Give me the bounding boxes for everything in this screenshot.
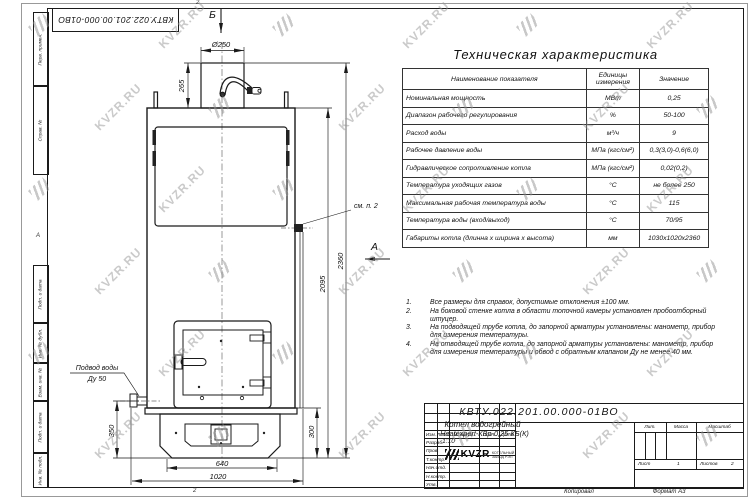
table-cell: Габариты котла (длинна х ширина х высота… [403,230,587,248]
base-bolt [263,432,265,434]
table-cell: Рабочее давление воды [403,142,587,160]
table-cell: Диапазон рабочего регулирования [403,107,587,125]
table-cell: м³/ч [586,125,640,143]
note-number: 4. [403,341,430,357]
tech-col-units: Единицы измерения [586,69,640,90]
door-bolt-hole [200,396,203,399]
door-bolt-hole [240,396,243,399]
tech-table-body: Номинальная мощностьМВт0,25Диапазон рабо… [403,90,709,248]
drawer-bolt [220,442,222,444]
col-list: Лист [437,432,449,439]
row-prov: Пров. [426,448,439,455]
tech-col-name: Наименование показателя [403,69,587,90]
water-inlet-label-line2: Ду 50 [87,376,106,383]
see-note-leader [303,210,351,224]
col-dokum: № докум. [449,432,479,439]
note-number: 3. [403,324,430,340]
lifting-lug-left [154,92,158,108]
dim-1020: 1020 [210,472,228,481]
table-cell: % [586,107,640,125]
title-block-doc-number: КВТУ.022.201.00.000-01ВО [425,404,653,420]
door-bolt [242,386,244,388]
col-data: Дата [499,432,515,439]
table-row: Рабочее давление водыМПа (кгс/см²)0,3(3,… [403,142,709,160]
dim-640: 640 [216,459,229,468]
view-a-label: А [370,241,378,253]
tech-table: Наименование показателя Единицы измерени… [402,68,709,248]
row-utv: Утв. [426,482,437,489]
dim-2095: 2095 [318,275,327,294]
sheets-number: 2 [731,461,734,468]
table-cell: 70/95 [640,212,709,230]
table-row: Температура уходящих газов°Сне более 250 [403,177,709,195]
table-row: Расход водым³/ч9 [403,125,709,143]
drawing-sheet: 2 2 А Перв. примен. Справ. № Подп. и дат… [0,0,750,500]
damper-latch [252,88,261,95]
upper-panel-door [155,127,287,226]
note-number: 1. [403,299,430,307]
dim-flue-diameter: Ø250 [211,40,231,49]
scale-label: Масштаб [696,424,743,431]
table-row: Габариты котла (длинна х ширина х высота… [403,230,709,248]
ash-drawer-handle-box [211,425,231,444]
upper-door-hinge [153,151,157,166]
title-block: Изм. Лист № докум. Подп. Дата Разраб. Пр… [424,403,744,489]
table-cell: Номинальная мощность [403,90,587,108]
row-tkontr: Т.контр. [426,457,445,464]
ash-drawer-handle [215,429,227,440]
note-text: На подводящей трубе котла, до запорной а… [430,324,725,340]
table-cell: Максимальная рабочая температура воды [403,195,587,213]
col-podp: Подп. [479,432,499,439]
sampling-pipe [300,232,303,408]
dim-265: 265 [177,79,186,93]
fire-door-panel [183,330,263,395]
table-cell: МПа (кгс/см²) [586,160,640,178]
sheets-label: Листов [700,461,717,468]
col-izm: Изм. [425,432,437,439]
tech-table-title: Техническая характеристика [402,47,709,62]
table-cell: 50-100 [640,107,709,125]
water-inlet-flange [130,394,137,407]
table-cell: Расход воды [403,125,587,143]
door-handle [181,359,206,366]
footer-format-label: Формат А3 [638,489,700,495]
note-item: 3.На подводящей трубе котла, до запорной… [403,324,725,340]
dim-300: 300 [307,425,316,438]
bottom-plate [145,408,297,414]
base-bolt [175,432,177,434]
door-bolt [220,340,222,342]
tech-characteristics-section: Техническая характеристика Наименование … [402,47,709,248]
view-b-label: Б [209,9,216,21]
base-pedestal [160,414,280,458]
note-text: На отводящей трубе котла, до запорной ар… [430,341,725,357]
upper-door-hinge [153,130,157,145]
damper-handle-inner [225,82,249,95]
table-cell: Температура уходящих газов [403,177,587,195]
table-cell: °С [586,195,640,213]
see-note-label: см. п. 2 [354,203,378,210]
table-row: Максимальная рабочая температура воды°С1… [403,195,709,213]
table-cell: Температура воды (вход/выход) [403,212,587,230]
table-cell: МПа (кгс/см²) [586,142,640,160]
door-hinge-bottom [250,380,264,386]
ext-lines-heights [113,63,350,458]
table-cell: 115 [640,195,709,213]
table-cell: 0,02(0,2) [640,160,709,178]
table-row: Гидравлическое сопротивление котлаМПа (к… [403,160,709,178]
dim-350: 350 [107,424,116,437]
table-cell: °С [586,212,640,230]
mass-label: Масса [666,424,696,431]
table-cell: 9 [640,125,709,143]
table-cell: 1030х1020х2360 [640,230,709,248]
table-cell: МВт [586,90,640,108]
ext-lines-d250 [201,47,244,62]
lifting-lug-right [285,92,289,108]
table-row: Температура воды (вход/выход)°С70/95 [403,212,709,230]
upper-door-hinge [286,130,290,145]
notes-list: 1.Все размеры для справок, допустимые от… [403,299,725,357]
table-cell: 0,25 [640,90,709,108]
table-cell: мм [586,230,640,248]
row-razrab: Разраб. [426,440,443,447]
damper-bracket [247,87,252,94]
lit-label: Лит. [634,424,666,431]
table-cell: °С [586,177,640,195]
dim-2360: 2360 [336,252,345,271]
water-inlet-label-line1: Подвод воды [76,364,119,372]
note-text: Все размеры для справок, допустимые откл… [430,299,725,307]
note-text: На боковой стенке котла в области топочн… [430,308,725,324]
sheet-number: 1 [677,461,680,468]
footer-copied-label: Копировал [548,489,610,495]
damper-handle-pivot [220,92,225,97]
table-cell: 0,3(3,0)-0,6(6,0) [640,142,709,160]
door-hinge-top [250,335,264,341]
table-cell: Гидравлическое сопротивление котла [403,160,587,178]
table-cell: не более 250 [640,177,709,195]
note-item: 2.На боковой стенке котла в области топо… [403,308,725,324]
note-item: 4.На отводящей трубе котла, до запорной … [403,341,725,357]
table-row: Диапазон рабочего регулирования%50-100 [403,107,709,125]
tech-col-value: Значение [640,69,709,90]
row-nkontr: Н.контр. [426,474,446,481]
note-item: 1.Все размеры для справок, допустимые от… [403,299,725,307]
sheet-label: Лист [638,461,650,468]
door-bolt [198,386,200,388]
row-nachotd: Нач.отд. [426,465,446,472]
table-row: Номинальная мощностьМВт0,25 [403,90,709,108]
note-number: 2. [403,308,430,324]
flue-chimney [201,63,244,108]
boiler-body [147,108,295,408]
upper-door-hinge [286,151,290,166]
